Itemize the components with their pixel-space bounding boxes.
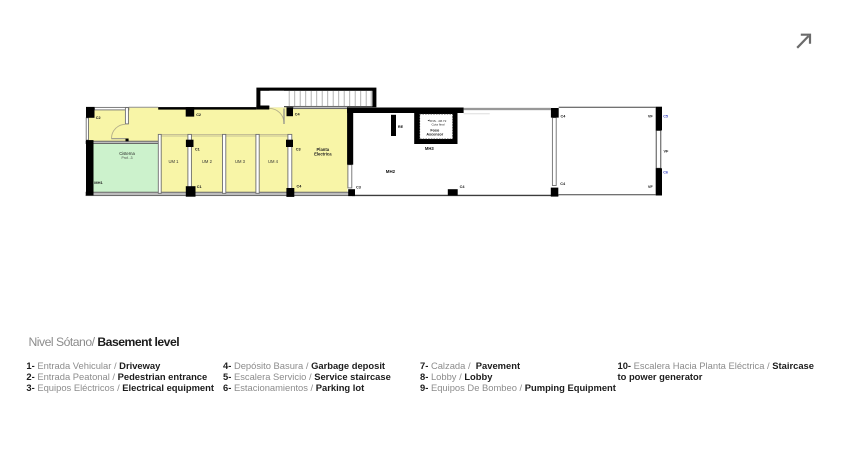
svg-text:Electrica: Electrica — [314, 151, 332, 156]
svg-text:C4: C4 — [560, 182, 566, 186]
svg-text:UM 3: UM 3 — [235, 159, 246, 164]
svg-text:C6: C6 — [663, 170, 668, 174]
svg-text:MH1: MH1 — [94, 180, 103, 185]
svg-text:MH2: MH2 — [386, 169, 396, 174]
svg-text:VF: VF — [648, 114, 654, 118]
svg-text:C4: C4 — [460, 185, 466, 189]
svg-text:VF: VF — [648, 185, 654, 189]
svg-text:C1: C1 — [197, 185, 202, 189]
svg-text:C1: C1 — [195, 147, 200, 151]
svg-text:UM 2: UM 2 — [202, 159, 213, 164]
svg-text:C3: C3 — [356, 185, 361, 189]
svg-text:C3: C3 — [296, 147, 301, 151]
svg-text:RE: RE — [398, 125, 404, 129]
svg-text:C2: C2 — [96, 116, 101, 120]
svg-text:MH3: MH3 — [425, 146, 435, 151]
svg-text:UM 4: UM 4 — [268, 159, 279, 164]
svg-text:Ascensor: Ascensor — [426, 133, 443, 137]
svg-text:VF: VF — [664, 150, 670, 154]
svg-text:Cota final: Cota final — [431, 122, 444, 126]
svg-text:C5: C5 — [663, 115, 668, 119]
svg-text:C2: C2 — [196, 113, 201, 117]
svg-text:Prof. -3: Prof. -3 — [121, 156, 132, 160]
svg-text:C4: C4 — [561, 114, 567, 118]
svg-text:UM 1: UM 1 — [168, 159, 179, 164]
